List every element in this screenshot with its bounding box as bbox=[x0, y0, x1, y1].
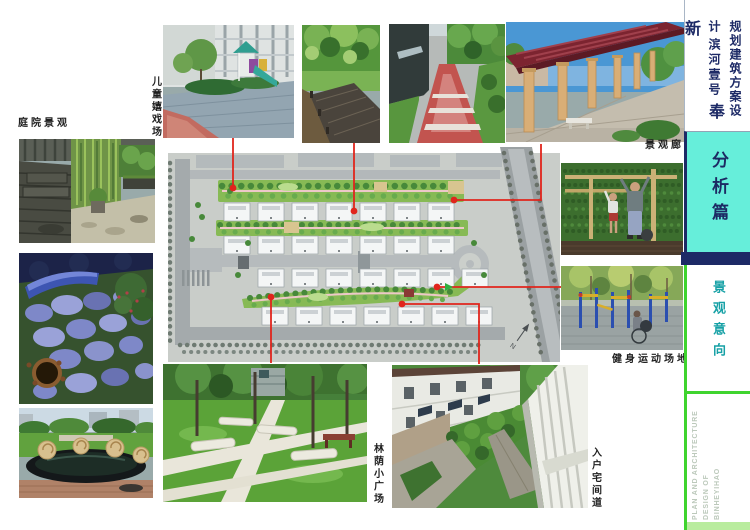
label-fitness-ground: 健身运动场地 bbox=[612, 354, 690, 367]
subsection-label: 景观意向 bbox=[709, 265, 728, 391]
label-children-playground: 儿童嬉戏场 bbox=[148, 76, 161, 139]
blue-stone-paving-photo bbox=[19, 253, 153, 404]
footer-line-2: DESIGN OF bbox=[701, 394, 712, 520]
title-block: 规划建筑方案设计 滨河壹号 奉新 bbox=[684, 0, 750, 131]
children-playground-photo bbox=[163, 25, 294, 138]
footer-line-3: BINHEYIHAO bbox=[712, 394, 723, 520]
label-shaded-plaza: 林荫小广场 bbox=[370, 443, 383, 506]
navy-divider-bar bbox=[681, 252, 750, 265]
master-plan-drawing: N bbox=[168, 147, 560, 362]
fitness-equipment-photo bbox=[561, 266, 683, 350]
courtyard-garden-photo bbox=[19, 139, 155, 243]
footer-english-title: PLAN AND ARCHITECTURE DESIGN OF BINHEYIH… bbox=[690, 394, 724, 520]
footer-green-band bbox=[687, 522, 750, 530]
section-tab-analysis: 分析篇 bbox=[684, 131, 750, 252]
label-courtyard-landscape: 庭院景观 bbox=[18, 118, 70, 131]
section-label: 分析篇 bbox=[706, 132, 731, 252]
entrance-lane-photo bbox=[392, 365, 588, 508]
fountain-pool-photo bbox=[19, 408, 153, 498]
red-paved-walkway-photo bbox=[389, 24, 505, 143]
label-entrance-lane: 入户宅间道 bbox=[588, 447, 601, 510]
presentation-board: N bbox=[0, 0, 750, 530]
project-subtitle: 滨河壹号 bbox=[707, 38, 721, 98]
pergola-corridor-photo bbox=[506, 22, 684, 142]
shaded-plaza-photo bbox=[163, 364, 367, 502]
subsection-landscape-intent: 景观意向 bbox=[687, 265, 750, 391]
boardwalk-path-photo bbox=[302, 25, 380, 143]
footer-line-1: PLAN AND ARCHITECTURE bbox=[690, 394, 701, 520]
label-landscape-corridor: 景观廊 bbox=[645, 140, 684, 153]
hedge-frame-photo bbox=[561, 163, 683, 255]
